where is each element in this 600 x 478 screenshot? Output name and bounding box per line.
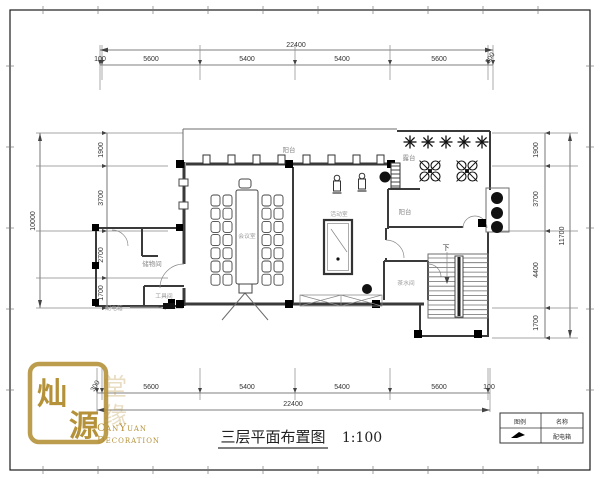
- drawing-scale: 1:100: [342, 430, 382, 446]
- dim-seg: 1900: [98, 142, 105, 158]
- chair: [274, 274, 283, 285]
- dim-total-left: 10000: [30, 211, 37, 231]
- chair: [274, 235, 283, 246]
- legend-distribution-symbol: [511, 432, 525, 438]
- stair-direction-arrow: [445, 277, 450, 284]
- chair: [262, 195, 271, 206]
- thin-outlines: [130, 129, 509, 320]
- window-symbol: [353, 155, 360, 164]
- plant-icon: [491, 221, 503, 233]
- chair: [223, 261, 232, 272]
- witness-lines-top: [100, 45, 493, 90]
- chair: [211, 248, 220, 259]
- label-distribution-box: 配电箱: [105, 304, 123, 312]
- title-block: 三层平面布置图 1:100: [218, 428, 382, 448]
- chair: [274, 248, 283, 259]
- chair: [223, 195, 232, 206]
- window-symbol: [303, 155, 310, 164]
- window-symbol: [328, 155, 335, 164]
- billiard-ball: [336, 257, 339, 260]
- dim-seg: 5400: [239, 384, 255, 391]
- company-name-line1: CanYuan: [97, 422, 147, 434]
- seal-character-1: 灿: [37, 377, 67, 412]
- dimension-left: 10000 1900 3700 2700 1700: [30, 131, 183, 310]
- dim-seg: 5600: [143, 384, 159, 391]
- chair: [262, 261, 271, 272]
- dim-seg: 3700: [98, 190, 105, 206]
- label-tea-room: 茶水间: [397, 279, 415, 287]
- dim-seg: 1700: [533, 315, 540, 331]
- chair: [211, 261, 220, 272]
- chair: [274, 221, 283, 232]
- window-symbol: [228, 155, 235, 164]
- chair: [262, 221, 271, 232]
- chair: [223, 208, 232, 219]
- window-symbol: [203, 155, 210, 164]
- floor-plan-canvas: 22400 100 5600 5400 5400 5600 300 22400 …: [0, 0, 600, 478]
- dim-seg: 5400: [239, 56, 255, 63]
- chair: [223, 235, 232, 246]
- legend-table: 图例 名称 配电箱: [500, 413, 583, 443]
- chair: [211, 195, 220, 206]
- company-name-line2: Decoration: [97, 435, 160, 446]
- dim-seg: 1700: [98, 285, 105, 301]
- dim-seg: 100: [94, 56, 106, 63]
- dim-seg: 4400: [533, 262, 540, 278]
- dim-seg: 300: [485, 51, 497, 65]
- equipment-figures: [333, 173, 367, 193]
- label-storage-room: 储物间: [142, 259, 162, 268]
- chair: [274, 208, 283, 219]
- label-stairs-down: 下: [443, 244, 450, 252]
- plant-icon: [491, 192, 503, 204]
- figure-icon: [359, 179, 366, 189]
- dim-seg: 5600: [431, 56, 447, 63]
- dim-seg: 300: [90, 379, 102, 393]
- label-terrace: 露台: [403, 153, 416, 162]
- watermark-character-1: 堂: [103, 373, 127, 401]
- dim-seg: 1900: [533, 142, 540, 158]
- chair: [211, 208, 220, 219]
- hatch-frame: [391, 163, 400, 188]
- dim-seg: 2700: [98, 247, 105, 263]
- seal-character-2: 源: [69, 409, 99, 444]
- flower-center-icon: [428, 169, 432, 173]
- dimension-bottom: 22400 300 5600 5400 5400 5600 100: [90, 368, 495, 412]
- terrace-plants: [404, 136, 489, 149]
- dimension-top: 22400 100 5600 5400 5400 5600 300: [94, 42, 497, 90]
- figure-icon: [334, 175, 340, 181]
- chair: [262, 208, 271, 219]
- chair: [223, 274, 232, 285]
- window-symbol: [179, 179, 188, 186]
- chair: [274, 195, 283, 206]
- plant-icon: [362, 284, 372, 294]
- window-symbol: [253, 155, 260, 164]
- legend-row-name: 配电箱: [553, 433, 571, 441]
- company-logo: 灿 源 堂 缘 CanYuan Decoration: [30, 364, 160, 446]
- terrace-flowers: [420, 161, 478, 182]
- chair: [262, 274, 271, 285]
- window-symbol: [278, 155, 285, 164]
- label-balcony-top: 阳台: [283, 145, 296, 154]
- label-tool-room: 工具间: [155, 292, 173, 300]
- label-balcony-right: 阳台: [399, 207, 412, 216]
- figure-icon: [359, 173, 365, 179]
- dim-seg: 5400: [334, 384, 350, 391]
- dim-total-right: 11700: [559, 226, 566, 245]
- dim-total-bottom: 22400: [283, 401, 303, 408]
- column-posts: [92, 160, 486, 338]
- chair: [211, 221, 220, 232]
- podium: [239, 284, 252, 293]
- plant-icon: [491, 207, 503, 219]
- legend-header-symbol: 图例: [514, 418, 526, 426]
- figure-icon: [334, 181, 341, 191]
- window-symbol: [377, 155, 384, 164]
- dim-seg: 5600: [143, 56, 159, 63]
- drawing-sheet: 22400 100 5600 5400 5400 5600 300 22400 …: [0, 0, 600, 478]
- distribution-box-symbol: [163, 303, 175, 309]
- flower-center-icon: [465, 169, 469, 173]
- chair: [211, 274, 220, 285]
- chair: [223, 221, 232, 232]
- legend-header-name: 名称: [556, 418, 568, 426]
- window-symbol: [179, 202, 188, 209]
- chair: [211, 235, 220, 246]
- dim-total-top: 22400: [286, 42, 306, 49]
- chair: [274, 261, 283, 272]
- label-meeting-room: 会议室: [238, 232, 256, 240]
- chair: [223, 248, 232, 259]
- chair: [262, 248, 271, 259]
- dim-seg: 100: [483, 384, 495, 391]
- wall-hatch-symbol: [391, 163, 400, 188]
- dim-seg: 5600: [431, 384, 447, 391]
- dim-seg: 3700: [533, 191, 540, 207]
- dimension-right: 11700 1900 3700 4400 1700: [492, 131, 578, 340]
- chair: [239, 179, 251, 188]
- dim-seg: 5400: [334, 56, 350, 63]
- plant-icon: [380, 172, 391, 183]
- label-activity-room: 活动室: [330, 210, 348, 218]
- drawing-title: 三层平面布置图: [220, 428, 325, 446]
- billiard-table: [324, 220, 352, 274]
- chair: [262, 235, 271, 246]
